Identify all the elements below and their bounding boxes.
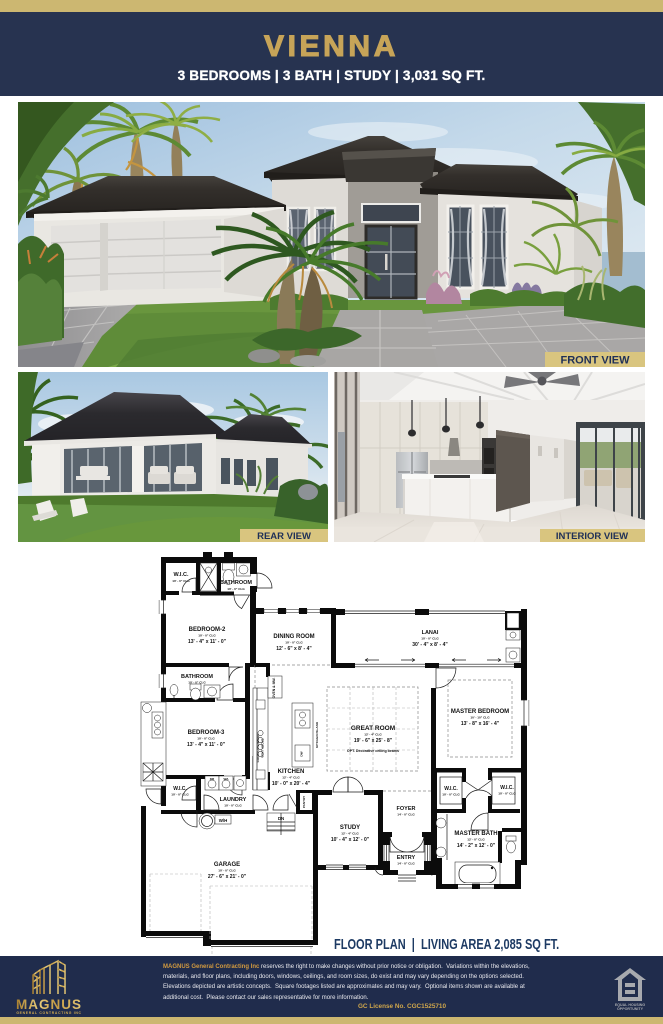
svg-text:W.I.C.: W.I.C.: [444, 786, 458, 792]
svg-text:10' - 0" CLG: 10' - 0" CLG: [498, 792, 516, 796]
svg-text:13' - 4" x 11' - 0": 13' - 4" x 11' - 0": [187, 742, 226, 748]
svg-text:27' - 6" x 21' - 0": 27' - 6" x 21' - 0": [208, 874, 247, 880]
svg-text:10' - 0" CLG: 10' - 0" CLG: [227, 587, 245, 591]
svg-text:10' - 0" CLG: 10' - 0" CLG: [421, 637, 439, 641]
svg-text:12' - 4" CLG: 12' - 4" CLG: [364, 733, 382, 737]
svg-text:13' - 8" x 16' - 4": 13' - 8" x 16' - 4": [461, 721, 500, 727]
svg-text:INTERIOR VIEW: INTERIOR VIEW: [556, 531, 628, 542]
svg-text:OPPORTUNITY: OPPORTUNITY: [617, 1007, 644, 1011]
svg-text:10' - 4" x 12' - 0": 10' - 4" x 12' - 0": [331, 837, 370, 843]
svg-text:10' - 0" CLG: 10' - 0" CLG: [198, 634, 216, 638]
svg-text:DR: DR: [210, 777, 215, 781]
svg-text:10' - 0" x 20' - 4": 10' - 0" x 20' - 4": [272, 781, 311, 787]
svg-text:12' - 6" x 8' - 4": 12' - 6" x 8' - 4": [276, 646, 312, 652]
svg-text:FOYER: FOYER: [397, 806, 416, 812]
svg-text:MAGNUS: MAGNUS: [16, 997, 82, 1012]
svg-text:DINING ROOM: DINING ROOM: [273, 634, 314, 640]
svg-text:KITCHEN ISLAND: KITCHEN ISLAND: [315, 721, 319, 748]
svg-text:14' - 0" CLG: 14' - 0" CLG: [397, 862, 415, 866]
svg-text:VENT ABOVE: VENT ABOVE: [261, 738, 265, 757]
svg-text:BATHROOM: BATHROOM: [220, 580, 252, 586]
svg-text:W.I.C.: W.I.C.: [500, 785, 514, 791]
svg-text:10' - 0" CLG: 10' - 0" CLG: [285, 641, 303, 645]
svg-text:19' - 6" x 25' - 8": 19' - 6" x 25' - 8": [354, 738, 393, 744]
svg-text:13' - 4" x 11' - 0": 13' - 4" x 11' - 0": [188, 639, 227, 645]
svg-text:FRONT VIEW: FRONT VIEW: [560, 355, 630, 367]
svg-text:ENTRY: ENTRY: [397, 855, 416, 861]
svg-text:REAR VIEW: REAR VIEW: [257, 531, 311, 542]
svg-text:14' - 0" CLG: 14' - 0" CLG: [397, 813, 415, 817]
svg-text:14' - 2" x 12' - 0": 14' - 2" x 12' - 0": [457, 843, 496, 849]
svg-text:10' - 0" CLG: 10' - 0" CLG: [197, 737, 215, 741]
svg-text:GREAT ROOM: GREAT ROOM: [351, 725, 395, 732]
svg-text:WA: WA: [224, 777, 230, 781]
svg-text:12' - 4" CLG: 12' - 4" CLG: [341, 832, 359, 836]
svg-text:STUDY: STUDY: [340, 825, 360, 831]
svg-text:W.I.C.: W.I.C.: [173, 786, 187, 792]
svg-text:LAUNDRY: LAUNDRY: [220, 797, 247, 803]
svg-text:BATHROOM: BATHROOM: [181, 674, 213, 680]
svg-text:GENERAL CONTRACTING INC: GENERAL CONTRACTING INC: [16, 1011, 81, 1015]
svg-text:DN: DN: [278, 816, 284, 821]
svg-text:OVEN & MW.: OVEN & MW.: [272, 678, 276, 699]
svg-text:12' - 0" CLG: 12' - 0" CLG: [467, 838, 485, 842]
svg-text:10' - 0" CLG: 10' - 0" CLG: [224, 804, 242, 808]
svg-text:COOKTOP w/WOOD: COOKTOP w/WOOD: [256, 733, 260, 763]
svg-text:BEDROOM-2: BEDROOM-2: [189, 627, 226, 633]
svg-text:MASTER BEDROOM: MASTER BEDROOM: [451, 709, 509, 715]
svg-text:GARAGE: GARAGE: [214, 862, 240, 868]
svg-text:12' - 4" CLG: 12' - 4" CLG: [282, 776, 300, 780]
svg-text:KITCHEN: KITCHEN: [278, 769, 305, 775]
svg-text:10' - 0" CLG: 10' - 0" CLG: [172, 579, 190, 583]
svg-text:30' - 4" x 8' - 4": 30' - 4" x 8' - 4": [412, 642, 448, 648]
svg-text:LANAI: LANAI: [422, 630, 439, 636]
svg-text:PANTRY: PANTRY: [302, 795, 306, 808]
svg-text:W/H: W/H: [219, 818, 228, 823]
svg-text:10' - 0" CLG: 10' - 0" CLG: [188, 681, 206, 685]
svg-text:10' - 0" CLG: 10' - 0" CLG: [218, 869, 236, 873]
svg-text:OPT. Decorative ceiling beams: OPT. Decorative ceiling beams: [347, 749, 399, 753]
svg-text:10' - 0" CLG: 10' - 0" CLG: [442, 793, 460, 797]
svg-text:MASTER BATH: MASTER BATH: [454, 831, 497, 837]
svg-text:10' - 0" CLG: 10' - 0" CLG: [171, 793, 189, 797]
svg-text:W.I.C.: W.I.C.: [174, 572, 189, 578]
svg-text:DW: DW: [300, 751, 304, 756]
svg-text:10' - 10" CLG: 10' - 10" CLG: [470, 716, 490, 720]
svg-text:BEDROOM-3: BEDROOM-3: [188, 730, 225, 736]
